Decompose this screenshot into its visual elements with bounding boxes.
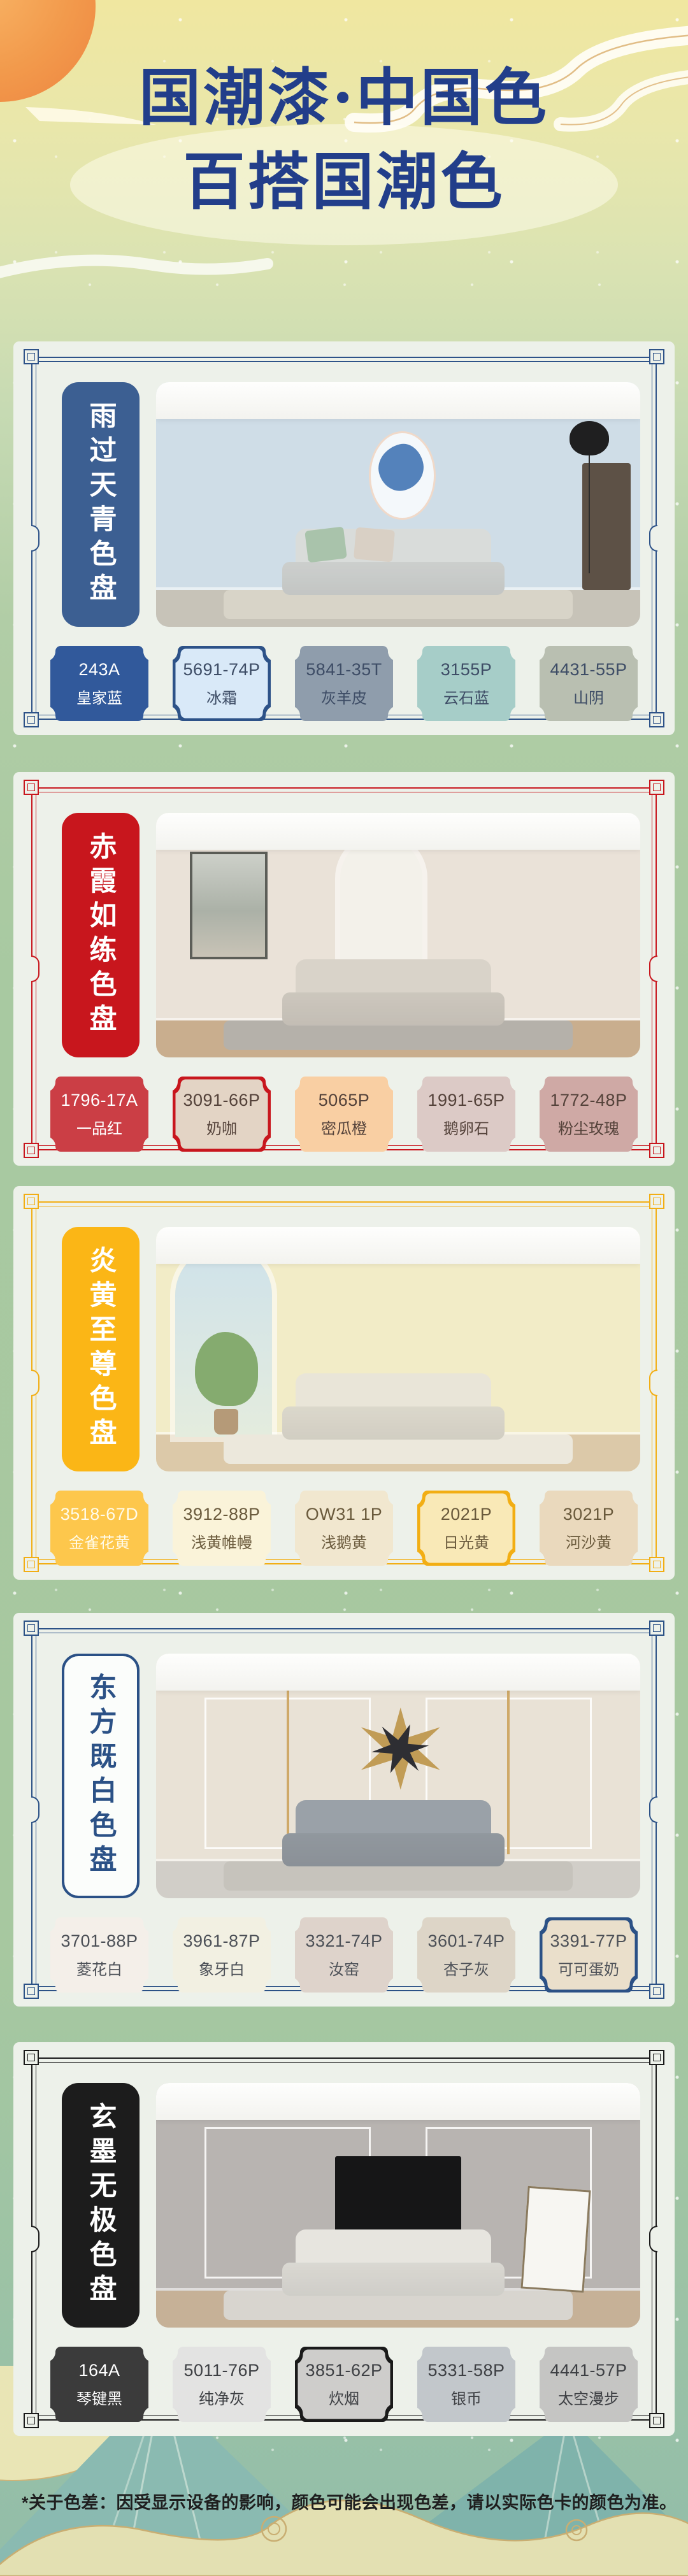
color-name: 冰霜 <box>206 685 237 708</box>
color-swatch: 2021P 日光黄 <box>412 1485 520 1571</box>
frame-notch-ornament <box>649 1370 657 1396</box>
frame-corner-ornament <box>649 712 664 727</box>
sofa <box>282 1373 505 1440</box>
color-name: 一品红 <box>76 1116 122 1138</box>
frame-notch-ornament <box>649 525 657 552</box>
palette-title: 炎黄至尊色盘 <box>81 1246 120 1452</box>
color-name: 密瓜橙 <box>321 1116 367 1138</box>
color-code: 5841-35T <box>306 660 382 680</box>
palette-title: 赤霞如练色盘 <box>81 832 120 1038</box>
color-name: 皇家蓝 <box>76 685 122 708</box>
color-code: 3155P <box>441 660 492 680</box>
color-swatch: 5331-58P 银币 <box>412 2342 520 2427</box>
frame-corner-ornament <box>24 1621 39 1636</box>
frame-corner-ornament <box>24 712 39 727</box>
color-code: 4441-57P <box>550 2361 627 2380</box>
palette-title-card: 玄墨无极色盘 <box>62 2083 140 2328</box>
color-swatch-fill: 4441-57P 太空漫步 <box>534 2342 643 2427</box>
color-code: 3912-88P <box>183 1505 260 1524</box>
color-swatch: 3518-67D 金雀花黄 <box>45 1485 154 1571</box>
color-swatch-fill: 164A 琴键黑 <box>45 2342 154 2427</box>
frame-corner-ornament <box>24 780 39 795</box>
color-swatch: 3321-74P 汝窑 <box>290 1912 398 1998</box>
color-swatch: 3601-74P 杏子灰 <box>412 1912 520 1998</box>
frame-corner-ornament <box>649 2413 664 2428</box>
swatch-row: 3701-88P 菱花白 3961-87P 象牙白 3321-74P 汝窑 36… <box>45 1912 643 1998</box>
poster-header: 国潮漆·中国色 百搭国潮色 <box>0 56 688 224</box>
potted-plant <box>195 1332 258 1435</box>
color-code: 164A <box>78 2361 120 2380</box>
frame-notch-ornament <box>649 955 657 982</box>
color-swatch: 3091-66P 奶咖 <box>168 1071 276 1157</box>
frame-corner-ornament <box>24 349 39 364</box>
color-swatch-fill: 5065P 密瓜橙 <box>290 1071 398 1157</box>
color-swatch: 243A 皇家蓝 <box>45 641 154 726</box>
color-swatch-fill: 5841-35T 灰羊皮 <box>290 641 398 726</box>
color-swatch: 3701-88P 菱花白 <box>45 1912 154 1998</box>
frame-corner-ornament <box>24 1143 39 1158</box>
color-name: 可可蛋奶 <box>558 1957 619 1979</box>
color-swatch-fill: 3851-62P 炊烟 <box>293 2345 396 2424</box>
color-swatch: 4431-55P 山阴 <box>534 641 643 726</box>
color-name: 奶咖 <box>206 1116 237 1138</box>
room-photo <box>156 1654 640 1898</box>
color-name: 鹅卵石 <box>443 1116 489 1138</box>
color-swatch-fill: 3155P 云石蓝 <box>412 641 520 726</box>
color-swatch: 1796-17A 一品红 <box>45 1071 154 1157</box>
color-swatch: 3391-77P 可可蛋奶 <box>534 1912 643 1998</box>
color-swatch: 3155P 云石蓝 <box>412 641 520 726</box>
wall-art <box>359 1707 441 1789</box>
color-code: 3321-74P <box>305 1931 382 1951</box>
frame-notch-ornament <box>649 2226 657 2252</box>
palette-panel: 炎黄至尊色盘 3518-67D 金雀花黄 3912-88P 浅黄帷幔 OW31 … <box>13 1186 675 1580</box>
color-swatch: 3912-88P 浅黄帷幔 <box>168 1485 276 1571</box>
color-swatch: 3021P 河沙黄 <box>534 1485 643 1571</box>
color-name: 杏子灰 <box>443 1957 489 1979</box>
frame-corner-ornament <box>24 1194 39 1209</box>
color-code: 5331-58P <box>427 2361 505 2380</box>
color-name: 汝窑 <box>329 1957 359 1979</box>
frame-corner-ornament <box>649 1621 664 1636</box>
color-code: 3518-67D <box>61 1505 139 1524</box>
color-swatch: 5691-74P 冰霜 <box>168 641 276 726</box>
color-name: 纯净灰 <box>199 2386 245 2408</box>
color-swatch: 5841-35T 灰羊皮 <box>290 641 398 726</box>
color-swatch: 3851-62P 炊烟 <box>290 2342 398 2427</box>
color-code: 3701-88P <box>61 1931 138 1951</box>
frame-notch-ornament <box>31 2226 39 2252</box>
color-swatch: 5011-76P 纯净灰 <box>168 2342 276 2427</box>
palette-panel: 东方既白色盘 3701-88P 菱花白 3961-87P 象牙白 3321-74… <box>13 1613 675 2007</box>
frame-notch-ornament <box>31 955 39 982</box>
room-ceiling <box>156 1654 640 1691</box>
color-swatch: 3961-87P 象牙白 <box>168 1912 276 1998</box>
leaning-poster <box>520 2186 591 2293</box>
color-swatch: 5065P 密瓜橙 <box>290 1071 398 1157</box>
frame-corner-ornament <box>649 349 664 364</box>
room-ceiling <box>156 2083 640 2120</box>
palette-title: 雨过天青色盘 <box>81 401 120 608</box>
color-name: 金雀花黄 <box>69 1530 130 1552</box>
color-code: 3391-77P <box>550 1931 627 1951</box>
color-swatch: 4441-57P 太空漫步 <box>534 2342 643 2427</box>
color-swatch-fill: 5011-76P 纯净灰 <box>168 2342 276 2427</box>
color-name: 日光黄 <box>443 1530 489 1552</box>
poster: 国潮漆·中国色 百搭国潮色 雨过天青色盘 243A 皇 <box>0 0 688 2576</box>
frame-corner-ornament <box>24 1557 39 1572</box>
color-code: 3961-87P <box>183 1931 260 1951</box>
room-ceiling <box>156 813 640 850</box>
swatch-row: 3518-67D 金雀花黄 3912-88P 浅黄帷幔 OW31 1P 浅鹅黄 … <box>45 1485 643 1571</box>
palette-title-card: 东方既白色盘 <box>62 1654 140 1898</box>
frame-notch-ornament <box>31 1370 39 1396</box>
color-code: 1991-65P <box>427 1091 505 1110</box>
color-name: 灰羊皮 <box>321 685 367 708</box>
color-disclaimer: *关于色差：因受显示设备的影响，颜色可能会出现色差，请以实际色卡的颜色为准。 <box>22 2489 677 2514</box>
frame-notch-ornament <box>31 1796 39 1823</box>
color-code: 5011-76P <box>183 2361 259 2380</box>
color-code: 5065P <box>319 1091 370 1110</box>
color-name: 粉尘玫瑰 <box>558 1116 619 1138</box>
color-code: 5691-74P <box>183 660 260 680</box>
color-swatch-fill: OW31 1P 浅鹅黄 <box>290 1485 398 1571</box>
color-swatch-fill: 5331-58P 银币 <box>412 2342 520 2427</box>
frame-corner-ornament <box>649 780 664 795</box>
palette-panel: 玄墨无极色盘 164A 琴键黑 5011-76P 纯净灰 3851-62P 炊烟 <box>13 2042 675 2436</box>
poster-title-line1: 国潮漆·中国色 <box>0 56 688 140</box>
sofa-cushions <box>156 382 640 627</box>
color-name: 浅黄帷幔 <box>191 1530 252 1552</box>
color-swatch: 1991-65P 鹅卵石 <box>412 1071 520 1157</box>
sofa <box>282 2229 505 2296</box>
room-ceiling <box>156 1227 640 1264</box>
color-swatch-fill: 4431-55P 山阴 <box>534 641 643 726</box>
color-code: OW31 1P <box>306 1505 383 1524</box>
palette-title-card: 炎黄至尊色盘 <box>62 1227 140 1471</box>
color-name: 浅鹅黄 <box>321 1530 367 1552</box>
color-code: 2021P <box>441 1505 492 1524</box>
color-swatch: OW31 1P 浅鹅黄 <box>290 1485 398 1571</box>
color-name: 象牙白 <box>199 1957 245 1979</box>
frame-corner-ornament <box>649 1194 664 1209</box>
color-swatch-fill: 3961-87P 象牙白 <box>168 1912 276 1998</box>
color-swatch-fill: 1991-65P 鹅卵石 <box>412 1071 520 1157</box>
room-photo <box>156 1227 640 1471</box>
color-swatch-fill: 3091-66P 奶咖 <box>171 1075 273 1154</box>
color-code: 1796-17A <box>61 1091 138 1110</box>
tv-screen <box>335 2156 461 2240</box>
frame-corner-ornament <box>649 1143 664 1158</box>
color-swatch-fill: 3391-77P 可可蛋奶 <box>538 1915 640 1995</box>
color-code: 3851-62P <box>305 2361 382 2380</box>
palette-panel: 赤霞如练色盘 1796-17A 一品红 3091-66P 奶咖 5065P 密瓜… <box>13 772 675 1166</box>
palette-title-card: 赤霞如练色盘 <box>62 813 140 1057</box>
frame-corner-ornament <box>24 2050 39 2065</box>
frame-corner-ornament <box>24 1984 39 1999</box>
color-name: 琴键黑 <box>76 2386 122 2408</box>
color-name: 菱花白 <box>76 1957 122 1979</box>
color-code: 1772-48P <box>550 1091 627 1110</box>
sofa <box>282 1800 505 1866</box>
color-swatch-fill: 3021P 河沙黄 <box>534 1485 643 1571</box>
color-swatch-fill: 5691-74P 冰霜 <box>171 644 273 724</box>
palette-panel: 雨过天青色盘 243A 皇家蓝 5691-74P 冰霜 5841-35T 灰羊皮 <box>13 341 675 735</box>
color-swatch: 1772-48P 粉尘玫瑰 <box>534 1071 643 1157</box>
frame-corner-ornament <box>24 2413 39 2428</box>
frame-corner-ornament <box>649 1984 664 1999</box>
color-swatch-fill: 3518-67D 金雀花黄 <box>45 1485 154 1571</box>
color-name: 河沙黄 <box>566 1530 612 1552</box>
swatch-row: 164A 琴键黑 5011-76P 纯净灰 3851-62P 炊烟 5331-5… <box>45 2342 643 2427</box>
color-code: 3091-66P <box>183 1091 260 1110</box>
palette-title: 东方既白色盘 <box>81 1673 120 1879</box>
swatch-row: 1796-17A 一品红 3091-66P 奶咖 5065P 密瓜橙 1991-… <box>45 1071 643 1157</box>
color-code: 3021P <box>563 1505 615 1524</box>
color-swatch-fill: 3912-88P 浅黄帷幔 <box>168 1485 276 1571</box>
color-name: 云石蓝 <box>443 685 489 708</box>
frame-corner-ornament <box>649 1557 664 1572</box>
frame-notch-ornament <box>649 1796 657 1823</box>
color-name: 炊烟 <box>329 2386 359 2408</box>
color-code: 3601-74P <box>427 1931 505 1951</box>
sofa <box>282 959 505 1026</box>
color-swatch-fill: 243A 皇家蓝 <box>45 641 154 726</box>
color-name: 山阴 <box>573 685 604 708</box>
poster-title-line2: 百搭国潮色 <box>0 140 688 224</box>
room-photo <box>156 813 640 1057</box>
color-code: 4431-55P <box>550 660 627 680</box>
color-swatch-fill: 1772-48P 粉尘玫瑰 <box>534 1071 643 1157</box>
color-name: 银币 <box>451 2386 482 2408</box>
color-swatch-fill: 2021P 日光黄 <box>415 1489 518 1568</box>
frame-corner-ornament <box>649 2050 664 2065</box>
wall-art <box>190 852 268 959</box>
palette-title-card: 雨过天青色盘 <box>62 382 140 627</box>
color-code: 243A <box>78 660 120 680</box>
room-photo <box>156 382 640 627</box>
swatch-row: 243A 皇家蓝 5691-74P 冰霜 5841-35T 灰羊皮 3155P … <box>45 641 643 726</box>
color-swatch-fill: 3601-74P 杏子灰 <box>412 1912 520 1998</box>
color-swatch-fill: 1796-17A 一品红 <box>45 1071 154 1157</box>
room-photo <box>156 2083 640 2328</box>
color-swatch: 164A 琴键黑 <box>45 2342 154 2427</box>
frame-notch-ornament <box>31 525 39 552</box>
color-swatch-fill: 3321-74P 汝窑 <box>290 1912 398 1998</box>
color-name: 太空漫步 <box>558 2386 619 2408</box>
palette-title: 玄墨无极色盘 <box>81 2102 120 2308</box>
color-swatch-fill: 3701-88P 菱花白 <box>45 1912 154 1998</box>
